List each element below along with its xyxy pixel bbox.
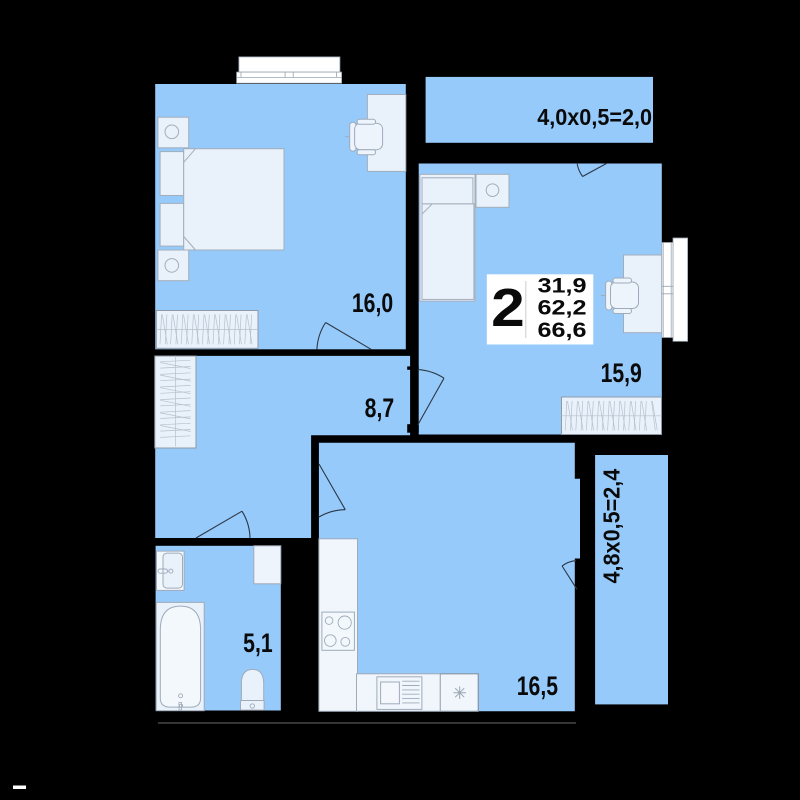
svg-text:4,8x0,5=2,4: 4,8x0,5=2,4 xyxy=(599,468,625,583)
svg-text:2: 2 xyxy=(491,278,525,338)
svg-text:66,6: 66,6 xyxy=(538,318,587,342)
svg-text:16,5: 16,5 xyxy=(517,672,558,702)
svg-text:15,9: 15,9 xyxy=(601,359,642,389)
svg-text:16,0: 16,0 xyxy=(352,289,393,319)
svg-text:62,2: 62,2 xyxy=(538,296,587,320)
svg-text:31,9: 31,9 xyxy=(538,273,587,297)
svg-text:8,7: 8,7 xyxy=(365,394,394,424)
svg-text:4,0x0,5=2,0: 4,0x0,5=2,0 xyxy=(537,104,652,130)
svg-text:5,1: 5,1 xyxy=(243,629,272,659)
